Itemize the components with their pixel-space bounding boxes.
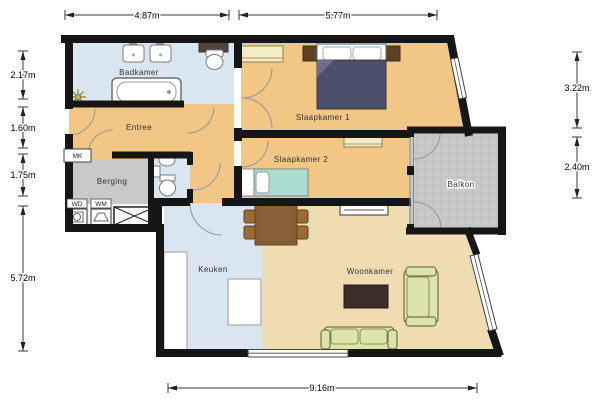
dimension-arrow [575, 137, 580, 146]
dryer [91, 209, 111, 225]
toilet [160, 180, 176, 196]
dim-label: 1.60m [10, 123, 35, 133]
pillow [323, 47, 351, 60]
dim-top-2: 5.77m [239, 10, 437, 21]
dim-label: 2.17m [10, 70, 35, 80]
toilet [206, 55, 223, 70]
dimension-arrow [428, 13, 437, 18]
dimension-arrow [21, 187, 26, 196]
dim-label: 5.77m [325, 11, 350, 21]
dimension-arrow [21, 139, 26, 148]
dimension-arrow [239, 13, 248, 18]
pillow [353, 47, 381, 60]
room-label-berging: Berging [97, 177, 127, 186]
dimension-arrow [21, 206, 26, 215]
room-label-keuken: Keuken [198, 265, 228, 274]
dimension-arrow [21, 90, 26, 99]
drain-icon [167, 90, 171, 94]
floor-plan-svg: MK WD WM Badkamer Entree Berging Slaapka… [0, 0, 600, 400]
dimension-arrow [65, 13, 74, 18]
room-label-entree: Entree [126, 123, 152, 132]
chair [297, 226, 308, 239]
dim-bottom-1: 9.16m [168, 383, 477, 393]
drain-icon [159, 54, 162, 57]
dim-label: 1.75m [10, 170, 35, 180]
dimension-arrow [468, 386, 477, 391]
dining-table [255, 203, 297, 245]
room-label-slaapkamer2: Slaapkamer 2 [274, 155, 328, 164]
dim-label: 9.16m [309, 383, 334, 393]
kitchen-counter [164, 252, 187, 353]
chair [244, 210, 255, 223]
dim-right-1: 3.22m [564, 52, 589, 128]
dimension-arrow [21, 154, 26, 163]
room-label-badkamer: Badkamer [119, 68, 159, 77]
duvet [317, 60, 386, 109]
wd-label: WD [72, 201, 83, 208]
nightstand [303, 46, 317, 61]
room-label-slaapkamer1: Slaapkamer 1 [296, 113, 350, 122]
drain-icon [132, 54, 135, 57]
dimension-arrow [21, 342, 26, 351]
sofa-single [404, 267, 438, 326]
dim-left-4: 5.72m [10, 206, 35, 351]
dimension-arrow [220, 13, 229, 18]
dim-left-3: 1.75m [10, 154, 35, 196]
tv [344, 285, 388, 308]
room-label-balkon: Balkon [448, 180, 475, 189]
sofa-two-seat [321, 327, 397, 351]
floor-plan: MK WD WM Badkamer Entree Berging Slaapka… [0, 0, 600, 400]
dim-label: 3.22m [564, 83, 589, 93]
kitchen-island [228, 279, 261, 325]
dim-right-2: 2.40m [564, 137, 589, 198]
mk-label: MK [73, 153, 83, 160]
dimension-arrow [21, 51, 26, 60]
dimension-arrow [575, 119, 580, 128]
wardrobe [237, 46, 283, 62]
room-label-woonkamer: Woonkamer [347, 267, 394, 276]
wm-label: WM [95, 201, 107, 208]
chair [297, 210, 308, 223]
dim-top-1: 4.87m [65, 10, 229, 21]
dimension-arrow [575, 52, 580, 61]
dim-label: 4.87m [134, 11, 159, 21]
chair [244, 226, 255, 239]
pillow [256, 172, 269, 193]
dim-left-1: 2.17m [10, 51, 35, 99]
dimension-arrow [21, 107, 26, 116]
dimension-arrow [168, 386, 177, 391]
dim-label: 5.72m [10, 273, 35, 283]
dimension-arrow [575, 189, 580, 198]
dim-label: 2.40m [564, 162, 589, 172]
nightstand [386, 46, 400, 61]
dim-left-2: 1.60m [10, 107, 35, 148]
wc-cabinet [153, 166, 160, 177]
